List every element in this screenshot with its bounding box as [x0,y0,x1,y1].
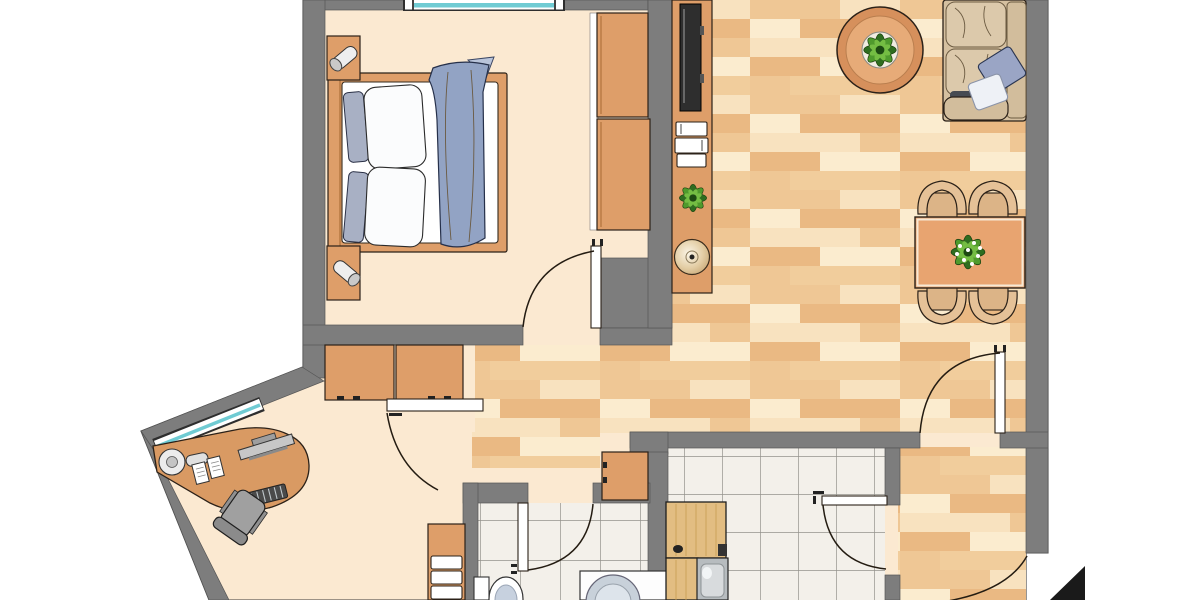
kitchen-sink [697,558,728,600]
wall-living-south-right [1000,432,1048,448]
hall-shelf-cabinet [428,524,465,600]
floor-plan-canvas [0,0,1200,600]
bed-pillow-white-top [363,84,427,170]
wall-right-exterior [1026,0,1048,553]
hall-small-cabinet [602,452,648,500]
table-plant-centerpiece [951,235,985,269]
double-bed [328,57,507,252]
decorative-disc [675,240,710,275]
wall-bedroom-left [303,0,325,378]
dining-chair-seat [927,193,957,219]
bed-pillow-white-bottom [364,167,426,248]
bedroom-window [403,0,565,11]
book-stack [675,122,708,167]
bedroom-wardrobe [590,13,650,230]
tv-panel [680,4,704,111]
sideboard [672,0,712,293]
entrance-arrow-icon [1050,566,1085,600]
dining-set [915,181,1025,324]
wall-hall-stub [600,328,672,345]
corner-sofa [943,0,1027,121]
dining-chair-seat [978,193,1008,219]
wall-kitchen-left-top [630,432,668,454]
coffee-table [837,7,923,93]
wall-living-left [648,0,672,328]
floor-plan-svg [0,0,1200,600]
hall-cabinet-right [396,345,463,400]
wall-living-south-left [630,432,920,448]
toilet [474,577,523,600]
wall-bedroom-bottom [303,325,523,345]
sideboard-plant [679,184,706,211]
washing-machine [580,571,668,600]
wall-kitchen-right-bottom [885,575,900,600]
hall-cabinet-left [325,345,394,400]
coffee-table-plant [864,34,897,67]
kitchen [666,502,728,600]
